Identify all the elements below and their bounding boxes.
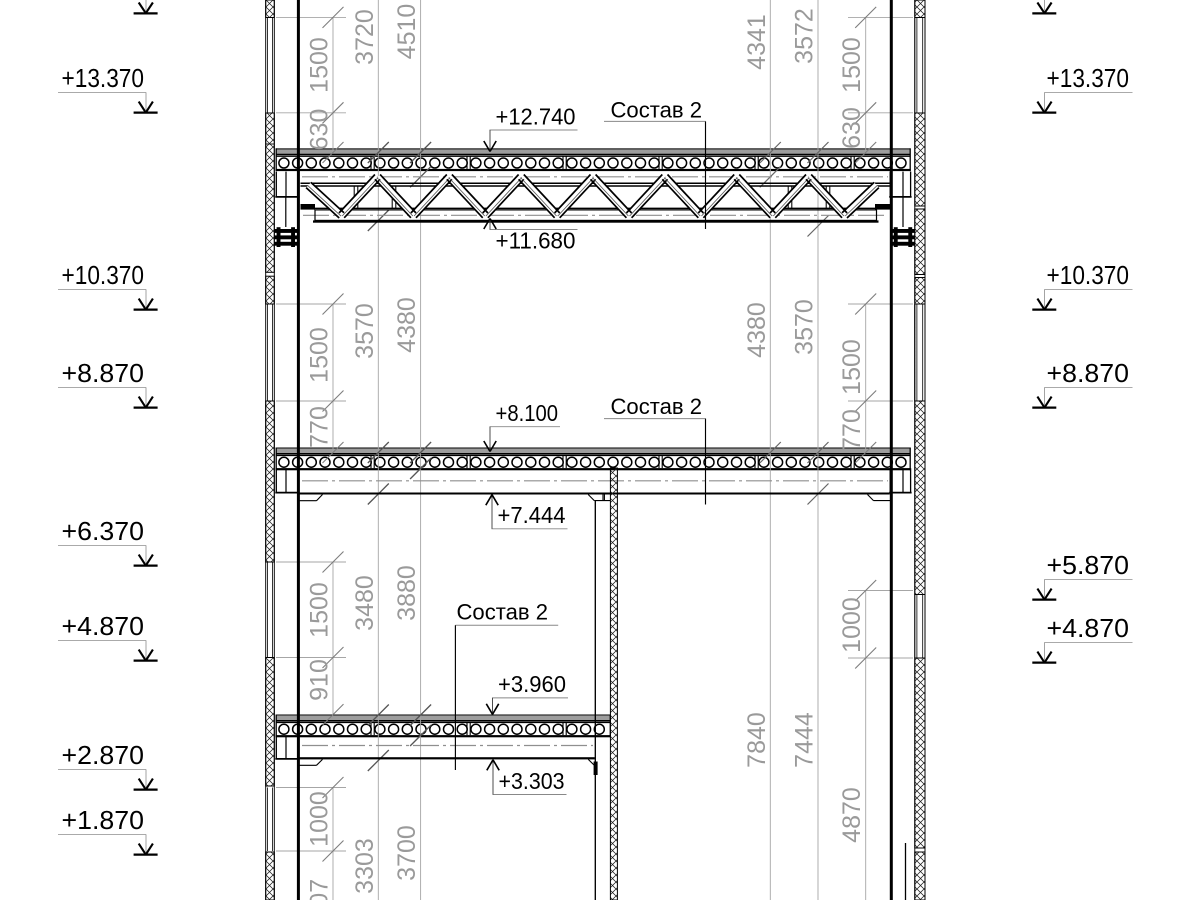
svg-text:4510: 4510 bbox=[393, 4, 421, 60]
svg-text:3572: 3572 bbox=[791, 8, 819, 64]
svg-text:Состав 2: Состав 2 bbox=[611, 97, 703, 122]
svg-text:4870: 4870 bbox=[838, 787, 866, 843]
svg-text:1500: 1500 bbox=[306, 327, 334, 383]
svg-text:+3.960: +3.960 bbox=[498, 671, 566, 697]
svg-text:770: 770 bbox=[306, 406, 334, 448]
svg-text:+5.870: +5.870 bbox=[1047, 550, 1130, 580]
svg-text:770: 770 bbox=[838, 409, 866, 451]
svg-text:Состав 2: Состав 2 bbox=[457, 600, 549, 625]
svg-text:3700: 3700 bbox=[393, 825, 421, 881]
svg-text:1500: 1500 bbox=[838, 339, 866, 395]
svg-text:+3.303: +3.303 bbox=[499, 768, 565, 794]
svg-text:+6.370: +6.370 bbox=[62, 516, 145, 546]
svg-text:7840: 7840 bbox=[743, 712, 771, 768]
svg-text:1000: 1000 bbox=[838, 597, 866, 653]
svg-text:+7.444: +7.444 bbox=[498, 502, 566, 528]
svg-text:07: 07 bbox=[306, 879, 334, 900]
svg-text:4380: 4380 bbox=[393, 297, 421, 353]
svg-text:910: 910 bbox=[306, 659, 334, 701]
svg-text:7444: 7444 bbox=[791, 712, 819, 768]
svg-text:+10.370: +10.370 bbox=[62, 260, 145, 290]
svg-text:+12.740: +12.740 bbox=[496, 103, 576, 129]
svg-text:+4.870: +4.870 bbox=[1047, 613, 1130, 643]
svg-text:+10.370: +10.370 bbox=[1047, 260, 1130, 290]
svg-text:+13.370: +13.370 bbox=[1047, 63, 1130, 93]
svg-text:+8.870: +8.870 bbox=[62, 358, 145, 388]
svg-text:+8.870: +8.870 bbox=[1047, 358, 1130, 388]
svg-text:4341: 4341 bbox=[743, 14, 771, 70]
svg-text:1000: 1000 bbox=[306, 791, 334, 847]
svg-text:3480: 3480 bbox=[351, 575, 379, 631]
svg-text:Состав 2: Состав 2 bbox=[611, 394, 703, 419]
svg-text:3880: 3880 bbox=[393, 565, 421, 621]
svg-text:+4.870: +4.870 bbox=[62, 611, 145, 641]
svg-text:+8.100: +8.100 bbox=[496, 400, 559, 426]
svg-text:1500: 1500 bbox=[838, 37, 866, 93]
svg-text:1500: 1500 bbox=[306, 37, 334, 93]
svg-text:630: 630 bbox=[838, 107, 866, 149]
svg-text:630: 630 bbox=[306, 109, 334, 151]
svg-text:3303: 3303 bbox=[351, 838, 379, 894]
svg-text:+2.870: +2.870 bbox=[62, 740, 145, 770]
svg-text:3570: 3570 bbox=[351, 303, 379, 359]
svg-text:1500: 1500 bbox=[306, 582, 334, 638]
svg-text:+11.680: +11.680 bbox=[496, 228, 576, 254]
svg-text:3570: 3570 bbox=[791, 299, 819, 355]
svg-text:3720: 3720 bbox=[351, 9, 379, 65]
svg-text:4380: 4380 bbox=[743, 302, 771, 358]
svg-text:+1.870: +1.870 bbox=[62, 805, 145, 835]
svg-text:+13.370: +13.370 bbox=[62, 63, 145, 93]
